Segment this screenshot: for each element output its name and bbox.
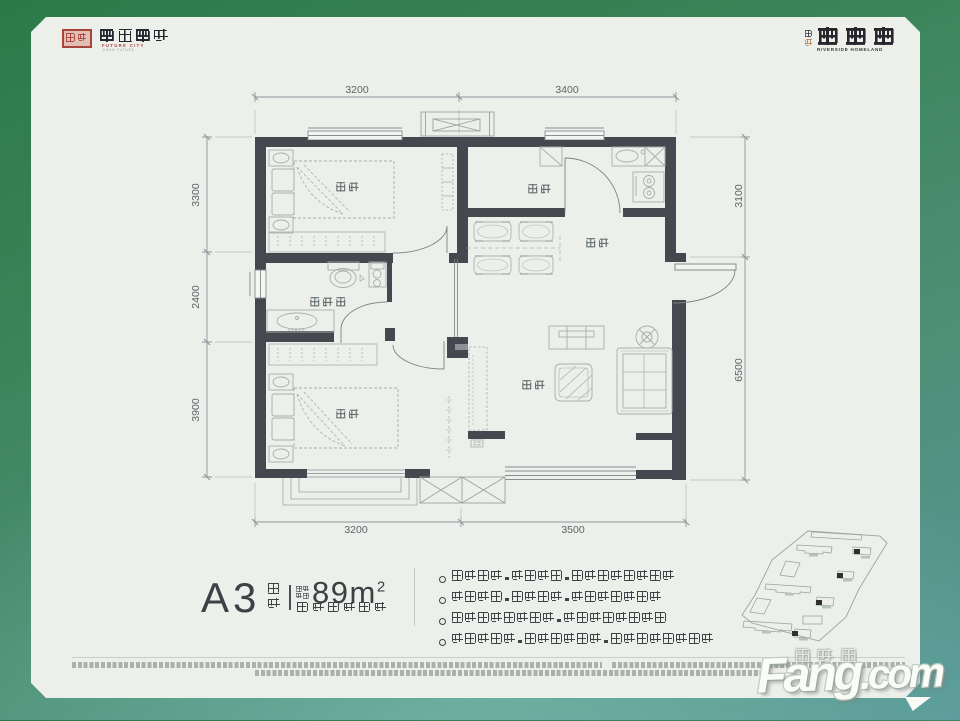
svg-text:3400: 3400 (555, 84, 579, 96)
svg-text:3100: 3100 (733, 184, 745, 208)
svg-text:3300: 3300 (190, 183, 202, 207)
svg-text:3900: 3900 (190, 398, 202, 422)
svg-text:3200: 3200 (344, 524, 368, 536)
svg-text:3200: 3200 (345, 84, 369, 96)
svg-text:6500: 6500 (733, 358, 745, 382)
svg-text:2400: 2400 (190, 285, 202, 309)
svg-text:3500: 3500 (561, 524, 585, 536)
